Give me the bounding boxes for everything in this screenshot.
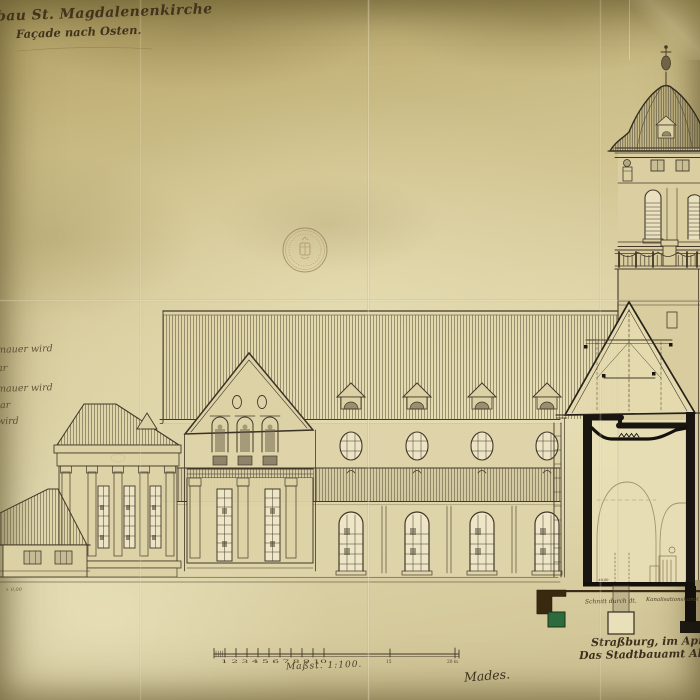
drawing-sheet: ±0,00 1 2 3 4 5 6 7 8 9 10 15 20 m: [0, 0, 700, 700]
title-flourish: [18, 47, 152, 51]
scale-end-number: 20 m: [447, 660, 458, 665]
foundations: [537, 586, 700, 634]
pavilion-windows: [98, 486, 161, 548]
floor-level-mark: ±0,00: [598, 578, 609, 582]
tower-finial: [661, 45, 671, 86]
scale-numbers: 1 2 3 4 5 6 7 8 9 10: [221, 660, 328, 665]
church-elevation-drawing: ±0,00 1 2 3 4 5 6 7 8 9 10 15 20 m: [0, 0, 700, 700]
scale-mid-number: 15: [386, 660, 392, 665]
scale-bar: 1 2 3 4 5 6 7 8 9 10 15 20 m: [214, 648, 459, 665]
ground-line: [0, 577, 560, 582]
tower-dome: [608, 86, 700, 151]
